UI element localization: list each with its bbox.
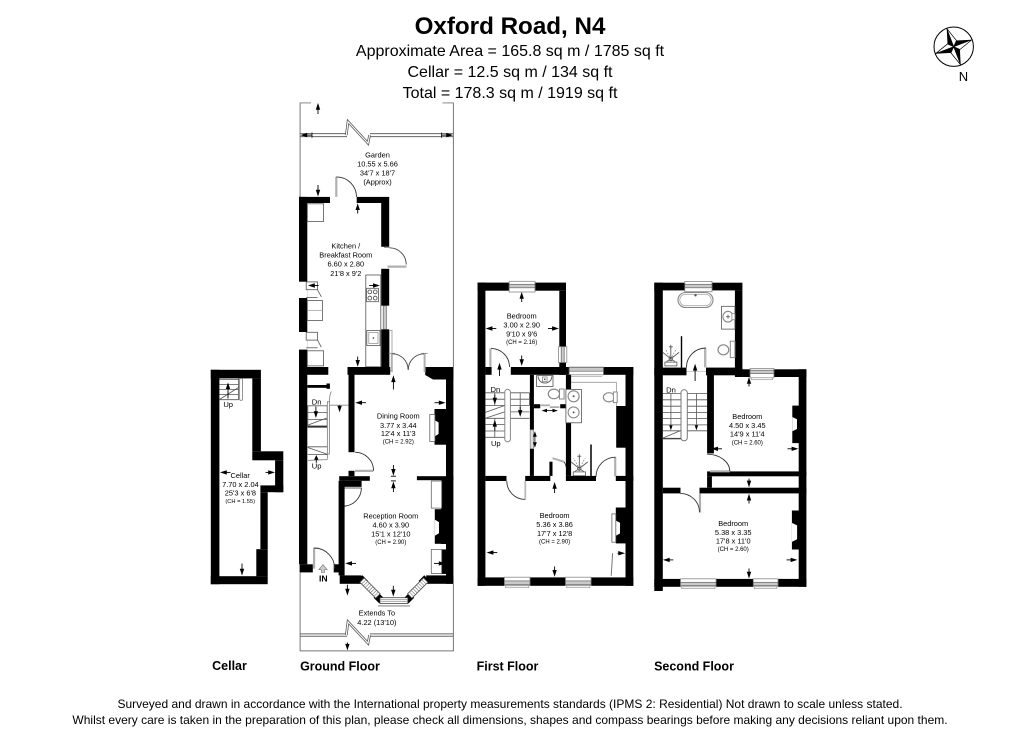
svg-text:5.38 x 3.35: 5.38 x 3.35 [715, 528, 752, 537]
svg-text:4.22 (13'10): 4.22 (13'10) [357, 618, 396, 627]
svg-text:Cellar: Cellar [212, 659, 247, 673]
svg-text:17'8 x 11'0: 17'8 x 11'0 [716, 537, 751, 546]
svg-text:Ground Floor: Ground Floor [300, 660, 380, 674]
svg-text:4.50 x 3.45: 4.50 x 3.45 [729, 421, 766, 430]
svg-text:3.00 x 2.90: 3.00 x 2.90 [503, 321, 540, 330]
svg-text:21'8 x 9'2: 21'8 x 9'2 [330, 269, 361, 278]
svg-text:Garden: Garden [365, 151, 390, 160]
svg-text:First Floor: First Floor [477, 660, 539, 674]
svg-text:Bedroom: Bedroom [718, 519, 748, 528]
svg-text:Approximate Area = 165.8 sq m: Approximate Area = 165.8 sq m / 1785 sq … [356, 43, 665, 60]
svg-text:Bedroom: Bedroom [732, 412, 762, 421]
svg-text:(CH = 2.92): (CH = 2.92) [383, 440, 414, 446]
svg-text:N: N [959, 69, 968, 84]
svg-text:4.60 x 3.90: 4.60 x 3.90 [373, 521, 410, 530]
svg-text:34'7 x 18'7: 34'7 x 18'7 [360, 169, 395, 178]
svg-text:17'7 x 12'8: 17'7 x 12'8 [537, 529, 572, 538]
svg-text:Up: Up [312, 461, 322, 470]
svg-text:10.55 x 5.66: 10.55 x 5.66 [357, 160, 398, 169]
svg-text:Up: Up [223, 400, 233, 409]
svg-text:(Approx): (Approx) [363, 178, 391, 187]
svg-text:(CH = 2.90): (CH = 2.90) [375, 540, 406, 546]
svg-text:Reception Room: Reception Room [363, 512, 418, 521]
svg-text:Bedroom: Bedroom [540, 511, 570, 520]
svg-text:IN: IN [319, 574, 328, 584]
svg-text:Dn: Dn [491, 385, 501, 394]
svg-text:7.70 x 2.04: 7.70 x 2.04 [222, 480, 259, 489]
svg-text:5.36 x 3.86: 5.36 x 3.86 [536, 520, 573, 529]
svg-text:(CH = 2.90): (CH = 2.90) [539, 540, 570, 546]
svg-text:(CH = 2.16): (CH = 2.16) [506, 340, 537, 346]
svg-text:(CH = 1.55): (CH = 1.55) [225, 499, 255, 505]
svg-text:Total = 178.3 sq m / 1919 sq f: Total = 178.3 sq m / 1919 sq ft [403, 85, 618, 102]
svg-text:(CH = 2.60): (CH = 2.60) [718, 547, 749, 553]
svg-text:Whilst every care is taken in: Whilst every care is taken in the prepar… [72, 713, 947, 727]
svg-text:Surveyed and drawn in accordan: Surveyed and drawn in accordance with th… [117, 697, 902, 711]
svg-text:Bedroom: Bedroom [507, 312, 537, 321]
svg-text:(CH = 2.60): (CH = 2.60) [732, 440, 763, 446]
svg-text:Dn: Dn [312, 397, 322, 406]
svg-text:9'10 x 9'6: 9'10 x 9'6 [506, 329, 537, 338]
svg-text:14'9 x 11'4: 14'9 x 11'4 [730, 430, 765, 439]
svg-text:Dining Room: Dining Room [377, 412, 420, 421]
svg-text:15'1 x 12'10: 15'1 x 12'10 [371, 530, 410, 539]
svg-text:Breakfast Room: Breakfast Room [319, 251, 372, 260]
svg-text:Kitchen /: Kitchen / [331, 241, 361, 250]
svg-text:6.60 x 2.80: 6.60 x 2.80 [328, 260, 365, 269]
svg-text:Up: Up [491, 439, 501, 448]
svg-text:25'3 x 6'8: 25'3 x 6'8 [225, 489, 256, 498]
svg-text:Cellar = 12.5 sq m / 134 sq ft: Cellar = 12.5 sq m / 134 sq ft [408, 64, 614, 81]
svg-text:Extends To: Extends To [359, 609, 395, 618]
svg-text:12'4 x 11'3: 12'4 x 11'3 [381, 429, 416, 438]
svg-text:Second Floor: Second Floor [654, 660, 734, 674]
svg-text:Oxford Road, N4: Oxford Road, N4 [415, 13, 606, 40]
svg-text:Cellar: Cellar [231, 471, 251, 480]
